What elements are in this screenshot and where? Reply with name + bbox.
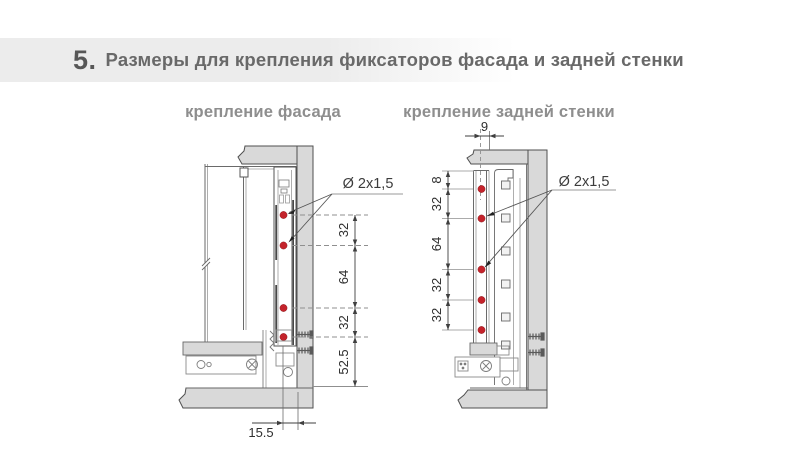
- back-side-panel: [528, 150, 547, 408]
- mounting-hole-dot: [280, 242, 287, 249]
- back-bottom-panel: [458, 390, 547, 408]
- diagrams-canvas: 32 64 32 52.5 Ø 2x1,5 15.5: [0, 0, 800, 450]
- facade-front-panel: [297, 146, 313, 408]
- facade-fixator-channel: [274, 167, 296, 346]
- facade-bottom-panel: [179, 388, 313, 408]
- mounting-hole-dot: [280, 304, 287, 311]
- mounting-hole-dot: [280, 333, 287, 340]
- mounting-hole-dot: [478, 185, 485, 192]
- screw-icon: [528, 333, 544, 340]
- mounting-hole-dot: [478, 266, 485, 273]
- dim-label: 9: [481, 119, 488, 134]
- back-top-offset-dimension: 9: [465, 119, 504, 150]
- dim-label: 52.5: [336, 349, 351, 374]
- back-slide-mechanism: [455, 343, 528, 388]
- mounting-hole-dot: [478, 215, 485, 222]
- facade-wall-break-icon: [202, 258, 210, 270]
- mounting-hole-dot: [478, 296, 485, 303]
- screw-icon: [528, 349, 544, 356]
- mounting-hole-dot: [478, 326, 485, 333]
- profile-tabs: [502, 181, 511, 349]
- dim-label: 64: [429, 237, 444, 251]
- dim-label: 32: [429, 278, 444, 292]
- back-wall-diagram: 8 32 64 32 32 9 Ø 2x1,5: [429, 119, 616, 408]
- facade-dimension-chain: 32 64 32 52.5: [336, 215, 357, 387]
- facade-diagram: 32 64 32 52.5 Ø 2x1,5 15.5: [179, 146, 403, 440]
- back-dimension-chain: 8 32 64 32 32: [429, 171, 450, 330]
- dim-label: 32: [429, 197, 444, 211]
- page: 5. Размеры для крепления фиксаторов фаса…: [0, 0, 800, 450]
- dim-label: 32: [336, 223, 351, 237]
- profile-hook-detail: [240, 168, 248, 177]
- dim-label: 32: [336, 315, 351, 329]
- facade-top-panel: [238, 146, 297, 164]
- mounting-hole-dot: [280, 211, 287, 218]
- hole-diameter-label: Ø 2x1,5: [343, 176, 394, 192]
- screw-icon: [297, 347, 313, 354]
- back-side-profile: [495, 164, 527, 390]
- dim-label: 64: [336, 270, 351, 284]
- dim-label: 8: [429, 176, 444, 183]
- dim-label: 15.5: [248, 425, 273, 440]
- back-top-panel: [467, 150, 528, 164]
- back-mounting-holes: [478, 185, 485, 333]
- hole-diameter-label: Ø 2x1,5: [559, 174, 610, 190]
- back-wall-panel: [474, 171, 490, 344]
- dim-label: 32: [429, 308, 444, 322]
